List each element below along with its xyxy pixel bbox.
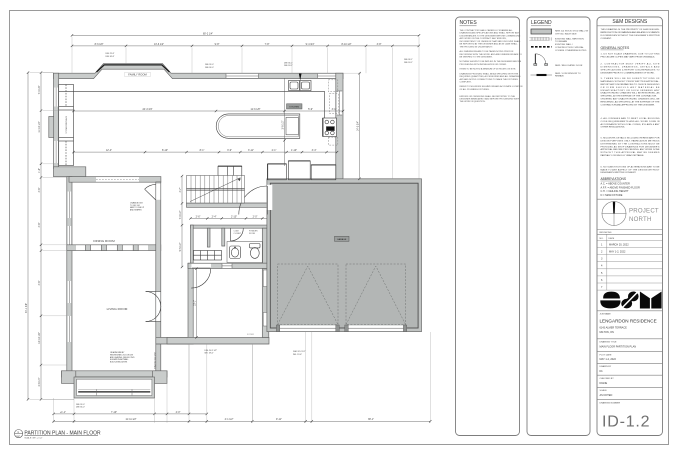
svg-text:44'-1 3/8": 44'-1 3/8" bbox=[25, 303, 28, 313]
svg-text:REVISIONS: REVISIONS bbox=[600, 232, 612, 234]
svg-text:S&M DESIGNS: S&M DESIGNS bbox=[612, 19, 647, 25]
svg-text:ITEMS TO BE NOTED A MINIMUM OF: ITEMS TO BE NOTED A MINIMUM OF 48 HOURS … bbox=[460, 68, 517, 71]
svg-text:UNAUTHORIZED CHANGES WILL BE R: UNAUTHORIZED CHANGES WILL BE REWORKED, A… bbox=[601, 92, 661, 95]
svg-text:SCALE: SCALE bbox=[600, 389, 608, 392]
svg-text:DISCREPANCIES TO THE DESIGNER: DISCREPANCIES TO THE DESIGNER BEFORE COM… bbox=[460, 34, 521, 37]
svg-text:THIS DRAWING IS THE PROPERTY O: THIS DRAWING IS THE PROPERTY OF S&M DESI… bbox=[601, 28, 660, 31]
svg-text:N = NEW FIXTURE: N = NEW FIXTURE bbox=[601, 194, 623, 197]
svg-text:OTHER REGULATIONS.: OTHER REGULATIONS. bbox=[601, 126, 626, 129]
svg-text:2'-6": 2'-6" bbox=[196, 215, 201, 218]
svg-text:REPRODUCTION OF DRAWINGS AND R: REPRODUCTION OF DRAWINGS AND RELATED DOC… bbox=[601, 31, 661, 34]
svg-text:ERRORS OR OMISSIONS SHALL BE R: ERRORS OR OMISSIONS SHALL BE REPORTED TO… bbox=[460, 95, 516, 98]
svg-text:ACCORDANCE WITH LOCAL CODES, B: ACCORDANCE WITH LOCAL CODES, BY-LAWS & A… bbox=[601, 123, 661, 126]
svg-text:DIM: 30'-1": DIM: 30'-1" bbox=[284, 65, 293, 67]
svg-text:RECORDING WITH THE WORK. ANY A: RECORDING WITH THE WORK. ANY AND DIMENSI… bbox=[460, 53, 523, 56]
svg-text:4'-6": 4'-6" bbox=[38, 280, 41, 285]
svg-text:MAY 1-2, 2022: MAY 1-2, 2022 bbox=[600, 358, 617, 361]
svg-text:MATERIALS WITHOUT PRIOR WRITTE: MATERIALS WITHOUT PRIOR WRITTEN APPROVAL… bbox=[601, 80, 660, 83]
svg-text:APPROVAL BEFORE PROCEEDING. AN: APPROVAL BEFORE PROCEEDING. ANY WORK DON… bbox=[601, 148, 661, 151]
svg-text:5. MILLWORK DETAILS INCLUDED H: 5. MILLWORK DETAILS INCLUDED HEREIN ARE … bbox=[601, 137, 660, 140]
svg-text:3'-9": 3'-9" bbox=[227, 149, 232, 152]
svg-text:AS NOTED: AS NOTED bbox=[600, 394, 613, 397]
svg-text:3. THERE WILL BE NO SUBSTITUTI: 3. THERE WILL BE NO SUBSTITUTIONS OF bbox=[601, 78, 661, 80]
svg-text:PROJECT: PROJECT bbox=[629, 208, 659, 215]
svg-text:1. DO NOT SCALE DRAWINGS. DUE: 1. DO NOT SCALE DRAWINGS. DUE TO CUTTING bbox=[601, 53, 660, 56]
svg-text:C.H. = CEILING HEIGHT: C.H. = CEILING HEIGHT bbox=[601, 190, 629, 193]
svg-text:NORTH: NORTH bbox=[629, 216, 652, 223]
svg-text:DESIGNER'S WRITTEN CONSENT.: DESIGNER'S WRITTEN CONSENT. bbox=[601, 172, 637, 174]
svg-text:8'-1": 8'-1" bbox=[200, 149, 205, 152]
svg-text:6. NO SUBSTITUTIONS OF ALTERAT: 6. NO SUBSTITUTIONS OF ALTERATIONS ARE T… bbox=[601, 165, 661, 168]
svg-text:LIVING ROOM: LIVING ROOM bbox=[107, 307, 128, 311]
svg-text:2'-4": 2'-4" bbox=[212, 215, 217, 218]
svg-text:4'-8": 4'-8" bbox=[38, 222, 41, 227]
svg-text:DRAWINGS AND SPECIFICATIONS AN: DRAWINGS AND SPECIFICATIONS AND SHALL RE… bbox=[460, 32, 520, 35]
svg-text:A.C. = ABOVE COUNTER: A.C. = ABOVE COUNTER bbox=[601, 182, 630, 185]
svg-text:ABBREVIATIONS: ABBREVIATIONS bbox=[601, 177, 626, 181]
svg-text:PROVIDED AS SHOP DRAWINGS FOR: PROVIDED AS SHOP DRAWINGS FOR DESIGNER'S bbox=[601, 145, 661, 148]
svg-text:DIM: 36'-0": DIM: 36'-0" bbox=[205, 67, 214, 69]
svg-text:GENERAL NOTES: GENERAL NOTES bbox=[601, 46, 630, 50]
svg-text:OF ALL PLUMBING FIXTURES.: OF ALL PLUMBING FIXTURES. bbox=[460, 88, 490, 91]
svg-text:ANY AND NOTED CONNECTIONS TO M: ANY AND NOTED CONNECTIONS TO MAKE THE FI… bbox=[460, 78, 519, 81]
svg-text:NEW 2x4 WOOD STUD WALL W/: NEW 2x4 WOOD STUD WALL W/ bbox=[555, 30, 589, 33]
svg-text:WITHOUT THIS APPROVAL MAY BE D: WITHOUT THIS APPROVAL MAY BE DEEMED bbox=[601, 151, 660, 154]
svg-text:CODE REQUIREMENTS AND ALL WORK: CODE REQUIREMENTS AND ALL WORK DONE IN bbox=[601, 120, 660, 123]
svg-text:INCONSISTENCY OR OMISSION THAT: INCONSISTENCY OR OMISSION THAT MAY DISCO… bbox=[460, 40, 522, 43]
svg-text:3'-1": 3'-1" bbox=[332, 108, 337, 111]
svg-text:38'-1": 38'-1" bbox=[368, 418, 374, 421]
svg-text:7'-3 1/8": 7'-3 1/8" bbox=[38, 85, 41, 94]
svg-text:10'-1": 10'-1" bbox=[193, 300, 196, 306]
svg-text:KITCHEN: KITCHEN bbox=[289, 107, 299, 109]
svg-text:PROCEDURE COPIES MAY VARY FROM: PROCEDURE COPIES MAY VARY FROM ORIGINALS… bbox=[601, 56, 656, 59]
svg-text:80'-2 1/4": 80'-2 1/4" bbox=[203, 32, 213, 35]
svg-text:8'-10": 8'-10" bbox=[162, 149, 168, 152]
svg-text:NEW / RELOCATED DOOR: NEW / RELOCATED DOOR bbox=[555, 64, 583, 67]
svg-text:4'-0": 4'-0" bbox=[176, 411, 181, 414]
svg-text:PARTIALLY OR WHOLLY UNACCEPTAB: PARTIALLY OR WHOLLY UNACCEPTABLE. bbox=[601, 154, 645, 157]
svg-text:GYP. BD. EACH SIDE: GYP. BD. EACH SIDE bbox=[555, 32, 577, 35]
svg-text:8'-6 1/8": 8'-6 1/8" bbox=[95, 43, 104, 46]
svg-text:5'-9": 5'-9" bbox=[308, 108, 313, 111]
svg-text:DIM: 26'-0": DIM: 26'-0" bbox=[76, 404, 85, 406]
svg-text:BUILT-IN MILLWORK: BUILT-IN MILLWORK bbox=[110, 362, 128, 364]
svg-text:DRAWINGS PROVIDED SHALL BE AS: DRAWINGS PROVIDED SHALL BE AS SPECIFIED … bbox=[460, 72, 519, 75]
svg-text:LEGEND: LEGEND bbox=[531, 20, 552, 26]
svg-text:DIMENSIONS, DRAWINGS, DETAILS: DIMENSIONS, DRAWINGS, DETAILS AND bbox=[601, 66, 660, 69]
svg-text:EXISTING WALL /: EXISTING WALL / bbox=[555, 43, 573, 46]
svg-text:MARCH 20, 2022: MARCH 20, 2022 bbox=[609, 243, 629, 246]
svg-text:14'-3 3/4": 14'-3 3/4" bbox=[356, 121, 359, 131]
svg-text:GARAGE: GARAGE bbox=[337, 238, 347, 241]
svg-text:WD: 19'-6": WD: 19'-6" bbox=[205, 353, 214, 355]
svg-text:A.F.F. = ABOVE FINISHED FLOOR: A.F.F. = ABOVE FINISHED FLOOR bbox=[601, 186, 640, 189]
svg-text:2'-8 1/4": 2'-8 1/4" bbox=[38, 377, 41, 386]
svg-text:7'-0 1/2": 7'-0 1/2" bbox=[179, 210, 182, 219]
svg-text:STONE FIREPLACE: STONE FIREPLACE bbox=[65, 115, 68, 133]
svg-text:PROCEEDING WITH INSTALLATION O: PROCEEDING WITH INSTALLATION OR ORDER. bbox=[460, 63, 508, 66]
svg-text:6143 ALMER TERRACE: 6143 ALMER TERRACE bbox=[600, 326, 628, 329]
svg-text:11'-6 1/8": 11'-6 1/8" bbox=[251, 108, 261, 111]
svg-text:2'-10": 2'-10" bbox=[231, 215, 237, 218]
svg-text:BE VERIFIED TO THE DESIGNER.: BE VERIFIED TO THE DESIGNER. bbox=[460, 57, 493, 59]
svg-text:PLOT DATE: PLOT DATE bbox=[600, 353, 612, 356]
svg-text:3'-4": 3'-4" bbox=[312, 149, 317, 152]
svg-text:3'-11": 3'-11" bbox=[248, 149, 254, 152]
svg-text:MAIN FLOOR PARTITION PLAN: MAIN FLOOR PARTITION PLAN bbox=[600, 345, 637, 348]
svg-text:DIM: 36'-8": DIM: 36'-8" bbox=[106, 56, 115, 58]
svg-text:ORDERED ANY UNAUTHORIZED CHANG: ORDERED ANY UNAUTHORIZED CHANGES WILL BE bbox=[601, 98, 661, 101]
svg-text:NOTES: NOTES bbox=[460, 20, 478, 26]
svg-text:DIM: 20'-2 1/2": DIM: 20'-2 1/2" bbox=[293, 351, 306, 353]
svg-text:7'-10": 7'-10" bbox=[111, 411, 117, 414]
svg-text:SCALE: 3/8" = 1'-0": SCALE: 3/8" = 1'-0" bbox=[24, 437, 42, 440]
svg-text:2. CONTRACTOR MUST VERIFY ALL: 2. CONTRACTOR MUST VERIFY ALL SITE bbox=[601, 63, 661, 66]
svg-text:1'-10": 1'-10" bbox=[291, 149, 297, 152]
svg-text:DATE: DATE bbox=[609, 237, 615, 240]
svg-text:THE WORK IN QUESTION.: THE WORK IN QUESTION. bbox=[460, 101, 486, 103]
svg-text:SPECIFIED, AT THE EXPENSE OF T: SPECIFIED, AT THE EXPENSE OF THE CONTRAC… bbox=[601, 95, 658, 98]
svg-text:REPORT ANY DISCREPANCIES TO CH: REPORT ANY DISCREPANCIES TO CHOICE DESIG… bbox=[601, 83, 660, 86]
svg-text:UNSATISFACTORY OR SUCH ORDERED: UNSATISFACTORY OR SUCH ORDERED ANY bbox=[601, 89, 661, 92]
svg-text:DIM: 36'-0": DIM: 36'-0" bbox=[76, 407, 85, 409]
svg-text:CLOSET: CLOSET bbox=[234, 233, 242, 235]
svg-text:NOTHING SHOWN TO BE IMPLIED IN: NOTHING SHOWN TO BE IMPLIED IN THE DESIG… bbox=[460, 61, 522, 63]
svg-text:DIM: 30'-1": DIM: 30'-1" bbox=[404, 62, 413, 64]
svg-text:EXISTING WALL PARTITION: EXISTING WALL PARTITION bbox=[555, 37, 584, 40]
svg-text:9'-4 3/4": 9'-4 3/4" bbox=[306, 43, 315, 46]
svg-text:4'-1 1/2": 4'-1 1/2" bbox=[225, 418, 234, 421]
svg-text:AND SHAPES: AND SHAPES bbox=[130, 209, 142, 212]
svg-text:REQUIRED QUANTITIES, ACCESSORI: REQUIRED QUANTITIES, ACCESSORIES AND ALL… bbox=[460, 75, 522, 78]
svg-text:CONSTRUCTION / SPECIAL: CONSTRUCTION / SPECIAL bbox=[555, 46, 584, 49]
svg-text:2'-0": 2'-0" bbox=[253, 215, 258, 218]
svg-text:OR FIRM SHOULD ANY MATERIAL BE: OR FIRM SHOULD ANY MATERIAL BE bbox=[601, 86, 661, 89]
svg-text:DRAWN BY: DRAWN BY bbox=[600, 365, 612, 368]
svg-text:13'-6 1/2": 13'-6 1/2" bbox=[154, 43, 164, 46]
svg-text:DIM: 20'-2 1/2": DIM: 20'-2 1/2" bbox=[205, 350, 218, 352]
svg-text:9'-11": 9'-11" bbox=[276, 418, 282, 421]
svg-text:COVERS OTHERWISE NOTED: COVERS OTHERWISE NOTED bbox=[555, 50, 587, 52]
svg-text:TO REMAIN: TO REMAIN bbox=[555, 40, 568, 43]
svg-text:REFER TO MILLWORK ELEVATIONS A: REFER TO MILLWORK ELEVATIONS AND ACCURAT… bbox=[460, 85, 523, 88]
svg-text:DINING ROOM: DINING ROOM bbox=[93, 239, 115, 243]
svg-text:WD: 19'-6": WD: 19'-6" bbox=[293, 354, 302, 356]
svg-text:IS FORBIDDEN WITHOUT THE DESIG: IS FORBIDDEN WITHOUT THE DESIGNER'S WRIT… bbox=[601, 35, 660, 37]
svg-text:BE REPORTED AT THE DESIGNER AN: BE REPORTED AT THE DESIGNER AND AS IN CA… bbox=[460, 43, 519, 46]
svg-text:REWORKED, AS SPECIFIED, AT THE: REWORKED, AS SPECIFIED, AT THE EXPENSE O… bbox=[601, 100, 661, 103]
svg-text:ALL DIMENSIONS ARE TO BE TAKEN: ALL DIMENSIONS ARE TO BE TAKEN NOTED PRI… bbox=[460, 50, 514, 53]
svg-text:REMAIN: REMAIN bbox=[555, 75, 564, 78]
svg-text:NO.: NO. bbox=[600, 238, 604, 240]
svg-text:3'-8 1/2": 3'-8 1/2" bbox=[281, 120, 284, 129]
svg-text:DRAWING TITLE: DRAWING TITLE bbox=[600, 341, 618, 344]
svg-text:DESIGNER IMMEDIATELY AND BEFOR: DESIGNER IMMEDIATELY AND BEFORE PROCEEDI… bbox=[460, 98, 520, 101]
svg-text:9'-8": 9'-8" bbox=[215, 43, 220, 46]
svg-text:DIANE: DIANE bbox=[600, 382, 608, 385]
svg-text:CONSENT.: CONSENT. bbox=[601, 38, 612, 40]
svg-text:12'-4": 12'-4" bbox=[106, 149, 112, 152]
svg-text:DESIGN PURPOSES ONLY. FABRICAT: DESIGN PURPOSES ONLY. FABRICATION METHOD… bbox=[601, 140, 661, 143]
svg-text:THE PROCEED IN UNCERTAINTY.: THE PROCEED IN UNCERTAINTY. bbox=[460, 45, 494, 48]
svg-text:STACKED W/D UNIT: STACKED W/D UNIT bbox=[154, 351, 157, 369]
svg-text:4'-6": 4'-6" bbox=[38, 187, 41, 192]
svg-text:ANY WORK ON THE CONTRACT. ANY: ANY WORK ON THE CONTRACT. ANY ERRORS, bbox=[460, 37, 507, 40]
svg-text:10'-10 1/8": 10'-10 1/8" bbox=[38, 332, 41, 344]
svg-text:4. ALL FINISHES ARE TO MEET LO: 4. ALL FINISHES ARE TO MEET LOCAL BUILDI… bbox=[601, 117, 660, 120]
svg-text:DESIGNER PRIOR TO COMMENCEMENT: DESIGNER PRIOR TO COMMENCEMENT OF WORK. bbox=[601, 72, 655, 74]
svg-text:MILTON, ON: MILTON, ON bbox=[600, 331, 615, 334]
svg-text:8'-10 1/2": 8'-10 1/2" bbox=[341, 43, 351, 46]
svg-text:COMPLETE.: COMPLETE. bbox=[460, 82, 472, 84]
svg-text:DRAWING NUMBER: DRAWING NUMBER bbox=[600, 402, 621, 405]
svg-text:NEW / LOW WINDOW TO: NEW / LOW WINDOW TO bbox=[555, 73, 581, 75]
svg-text:11'-11 1/2": 11'-11 1/2" bbox=[125, 418, 136, 421]
svg-text:CHECKED BY: CHECKED BY bbox=[600, 378, 615, 380]
svg-text:MAY 1-2, 2022: MAY 1-2, 2022 bbox=[609, 251, 626, 254]
svg-text:CONTRACTOR AND APPROVED BY THE: CONTRACTOR AND APPROVED BY THE DESIGNER. bbox=[601, 103, 656, 106]
svg-text:7'-8": 7'-8" bbox=[265, 43, 270, 46]
svg-text:5'-5 1/2": 5'-5 1/2" bbox=[179, 242, 182, 251]
svg-text:FAMILY ROOM: FAMILY ROOM bbox=[128, 73, 147, 77]
svg-text:FOYER: FOYER bbox=[247, 334, 254, 336]
svg-text:DETERMINED BY THE CONTRACTORS: DETERMINED BY THE CONTRACTORS MUST BE bbox=[601, 142, 661, 145]
svg-text:2'-1": 2'-1" bbox=[272, 149, 277, 152]
svg-text:LENGARDON RESIDENCE: LENGARDON RESIDENCE bbox=[600, 319, 657, 324]
svg-text:1'-8": 1'-8" bbox=[38, 168, 41, 173]
svg-text:THE CONTRACTOR SHALL CAREFULLY: THE CONTRACTOR SHALL CAREFULLY EXAMINE A… bbox=[460, 29, 514, 32]
svg-text:MADE TO ANY ASPECT OF THE DESI: MADE TO ANY ASPECT OF THE DESIGN WITHOUT bbox=[601, 168, 661, 171]
svg-text:ROOM: ROOM bbox=[249, 233, 255, 235]
svg-text:+1'-1": +1'-1" bbox=[60, 411, 66, 414]
svg-text:3'-8": 3'-8" bbox=[377, 43, 382, 46]
svg-text:11'-10 1/2": 11'-10 1/2" bbox=[38, 121, 41, 132]
svg-text:SPECIFICATIONS & REPORT DISCRE: SPECIFICATIONS & REPORT DISCREPANCIES TO bbox=[601, 68, 660, 71]
svg-text:ID-1.2: ID-1.2 bbox=[602, 414, 650, 431]
svg-text:4'-7": 4'-7" bbox=[179, 187, 182, 192]
svg-text:JOB NAME: JOB NAME bbox=[600, 313, 612, 316]
svg-text:24'-3 3/4": 24'-3 3/4" bbox=[142, 108, 152, 111]
